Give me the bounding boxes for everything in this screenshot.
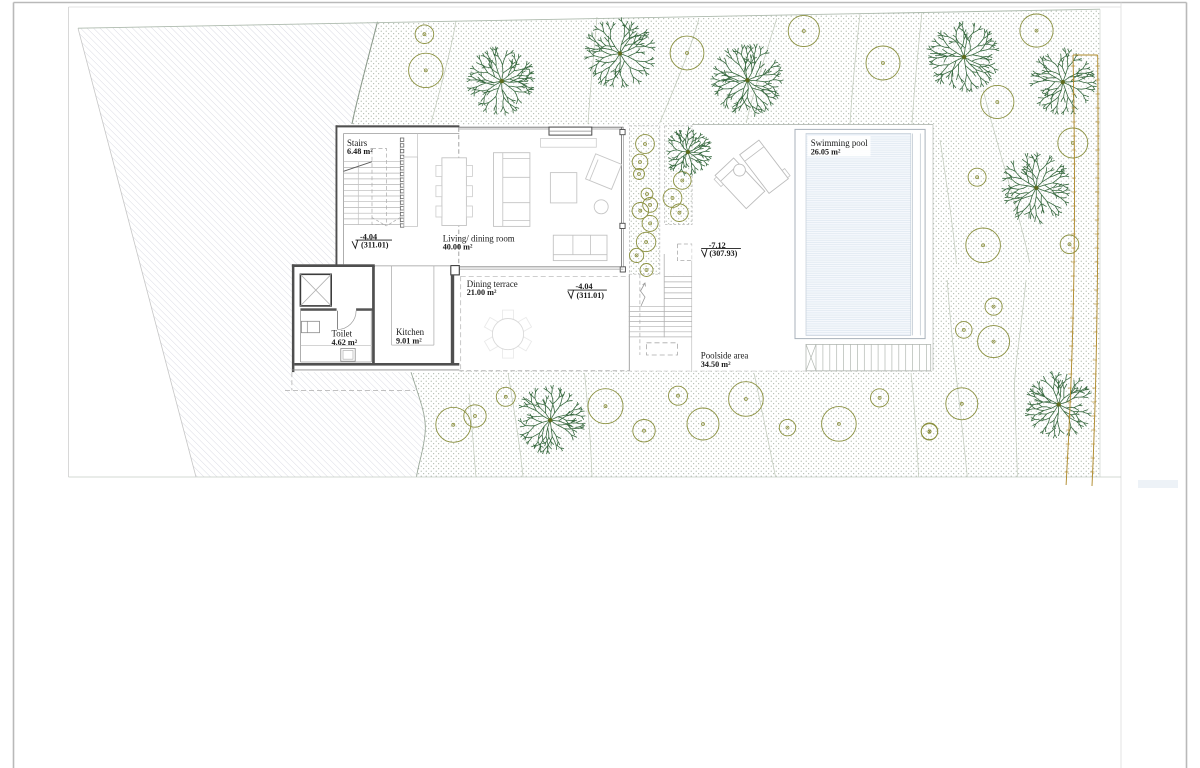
svg-text:9.01 m²: 9.01 m² <box>396 336 422 345</box>
svg-text:34.50 m²: 34.50 m² <box>701 360 731 369</box>
svg-text:26.05 m²: 26.05 m² <box>811 148 841 157</box>
svg-text:Swimming pool: Swimming pool <box>811 138 868 148</box>
svg-text:(307.93): (307.93) <box>709 249 737 258</box>
svg-text:6.48 m²: 6.48 m² <box>347 147 373 156</box>
svg-text:21.00 m²: 21.00 m² <box>467 288 497 297</box>
svg-text:4.62 m²: 4.62 m² <box>332 338 358 347</box>
svg-text:Kitchen: Kitchen <box>396 327 425 337</box>
svg-text:40.00 m²: 40.00 m² <box>443 243 473 252</box>
svg-text:Toilet: Toilet <box>332 329 353 339</box>
svg-text:(311.01): (311.01) <box>577 291 605 300</box>
svg-text:(311.01): (311.01) <box>361 241 389 250</box>
